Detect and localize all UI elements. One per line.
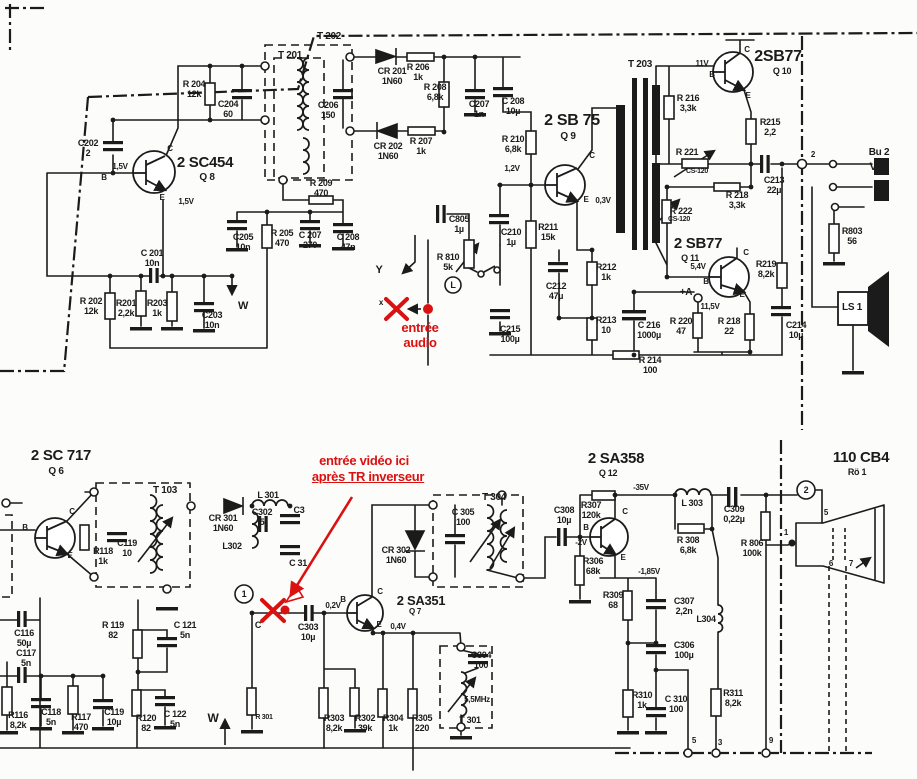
r810-label: R 810 5k [437, 252, 460, 272]
r219-label: R219 8,2k [756, 259, 776, 279]
r311-label: R311 8,2k [723, 688, 743, 708]
a-volt-label: 11,5V [701, 303, 720, 312]
bu2-label: Bu 2 [869, 147, 889, 158]
r214-label: R 214 100 [639, 355, 662, 375]
t304-label: T 304 [482, 492, 506, 503]
cr302-label: CR 302 1N60 [382, 545, 411, 565]
q7-ref-label: Q 7 [409, 608, 421, 617]
q12-e-label: E [620, 554, 625, 563]
c205-label: C205 10n [233, 232, 253, 252]
pin3-bottom-label: 3 [718, 739, 722, 748]
q10-base-volt-label: 11V [696, 60, 709, 69]
r307-label: R307 120k [581, 500, 601, 520]
q10-e-label: E [745, 92, 750, 101]
c117-label: C117 5n [16, 648, 36, 668]
c305-label: C 305 100 [452, 507, 475, 527]
q12-coll-volt-label: -35V [633, 484, 649, 493]
q10-type-label: 2SB77 [754, 48, 801, 66]
q7-b-label: B [340, 596, 345, 605]
c119b-label: C119 10µ [104, 707, 124, 727]
q8-base-volt-label: 1,5V [112, 163, 127, 172]
q10-ref-label: Q 10 [773, 66, 791, 76]
r304-label: R304 1k [383, 713, 403, 733]
c302-label: C302 5 [252, 507, 272, 527]
c204-label: C204 60 [218, 99, 238, 119]
schematic-canvas: Scanned TV receiver schematic: audio out… [0, 0, 917, 779]
node1-circle-label: 1 [242, 589, 247, 599]
q10-b-label: B [709, 71, 714, 80]
r218b-label: R 218 22 [718, 316, 741, 336]
q8-c-label: C [167, 145, 172, 154]
c121-label: C 121 5n [174, 620, 197, 640]
q9-ref-label: Q 9 [560, 131, 575, 142]
c203-label: C203 10n [202, 310, 222, 330]
c207a-label: C207 1n [469, 99, 489, 119]
plus-a-label: +A [680, 287, 692, 298]
q6-ref-label: Q 6 [48, 466, 63, 477]
q9-c-label: C [589, 152, 594, 161]
q8-b-label: B [101, 174, 106, 183]
r218a-label: R 218 3,3k [726, 190, 749, 210]
c122-label: C 122 5n [164, 709, 187, 729]
c202-label: C202 2 [78, 138, 98, 158]
crt-pin7-label: 7 [849, 560, 853, 569]
ls1-label: LS 1 [842, 302, 862, 313]
trap-freq-label: 5,5MHz [464, 696, 490, 705]
q6-type-label: 2 SC 717 [31, 448, 91, 465]
r803-label: R803 56 [842, 226, 862, 246]
q8-type-label: 2 SC454 [177, 155, 233, 172]
c303-label: C303 10µ [298, 622, 318, 642]
c210-label: C210 1µ [501, 227, 521, 247]
r208-label: R 208 6,8k [424, 82, 447, 102]
r116-label: R116 8,2k [8, 710, 28, 730]
q6-b-label: B [22, 524, 27, 533]
l304-label: L304 [696, 614, 715, 624]
c3-label: C3 [294, 505, 305, 515]
c119a-label: C119 10 [117, 538, 137, 558]
r201-label: R201 2,2k [116, 298, 136, 318]
t203-label: T 203 [628, 59, 652, 70]
r207-label: R 207 1k [410, 136, 433, 156]
r117-label: R117 470 [71, 712, 91, 732]
c306-label: C306 100µ [674, 640, 694, 660]
c118-label: C118 5n [41, 707, 61, 727]
q6-e-label: E [67, 552, 72, 561]
q8-ref-label: Q 8 [199, 172, 214, 183]
c216-label: C 216 1000µ [637, 320, 661, 340]
c201-label: C 201 10n [141, 248, 164, 268]
q9-base-volt-label: 1,2V [504, 165, 519, 174]
video-entry-annotation-line2: après TR inverseur [312, 470, 424, 485]
crt-type-label: 110 CB4 [833, 450, 889, 467]
r118-label: R118 1k [93, 546, 113, 566]
pin5-bottom-label: 5 [692, 737, 696, 746]
crt-pin5-label: 5 [824, 509, 828, 518]
c215-label: C215 100µ [500, 324, 520, 344]
r309-label: R309 68 [603, 590, 623, 610]
r308-label: R 308 6,8k [677, 535, 700, 555]
r120-label: R120 82 [136, 713, 156, 733]
q7-e-label: E [376, 621, 381, 630]
q10-c-label: C [744, 46, 749, 55]
schematic-labels: T 202T 2012 SC454Q 81,5VBCE1,5VC202 2R 2… [0, 0, 917, 779]
c308-label: C308 10µ [554, 505, 574, 525]
q12-b-label: B [583, 524, 588, 533]
cr201-label: CR 201 1N60 [378, 66, 407, 86]
crt-pin6-label: 6 [829, 560, 833, 569]
volume-control-label: L [450, 280, 455, 290]
r119-label: R 119 82 [102, 620, 124, 640]
r204-label: R 204 12k [183, 79, 206, 99]
r222-label: R 222 [670, 206, 693, 216]
audio-entry-annotation: entrée audio [401, 321, 438, 350]
x-mark-label: x [379, 299, 383, 308]
c208b-label: C 208 47n [337, 232, 360, 252]
q12-type-label: 2 SA358 [588, 451, 644, 468]
l302-label: L302 [222, 541, 241, 551]
r205-label: R 205 470 [271, 228, 294, 248]
pin9-bottom-label: 9 [769, 737, 773, 746]
c309-label: C309 0,22µ [723, 504, 744, 524]
q9-type-label: 2 SB 75 [544, 112, 600, 130]
r209-label: R 209 470 [310, 178, 333, 198]
q11-c-label: C [743, 249, 748, 258]
q6-c-label: C [69, 508, 74, 517]
c310-label: C 310 100 [665, 694, 688, 714]
r203-label: R203 1k [147, 298, 167, 318]
l303-label: L 303 [681, 498, 702, 508]
r210-label: R 210 6,8k [502, 134, 525, 154]
node2-circle-label: 2 [804, 485, 809, 495]
cr202-label: CR 202 1N60 [374, 141, 403, 161]
r301-label: R 301 [255, 714, 272, 722]
q8-e-label: E [159, 194, 164, 203]
y-arrow-label: Y [375, 264, 382, 276]
l301-label: L 301 [257, 490, 278, 500]
r306-label: R306 68k [583, 556, 603, 576]
q7-base-c-label: C [255, 620, 261, 630]
r206-label: R 206 1k [407, 62, 430, 82]
crt-pin1-label: 1 [784, 529, 788, 538]
c206-label: C206 150 [318, 100, 338, 120]
q7-base-volt-label: 0,2V [325, 602, 340, 611]
c805-label: C805 1µ [449, 214, 469, 234]
q11-type-label: 2 SB77 [674, 236, 722, 253]
r222-value-label: CS-120 [668, 216, 690, 224]
r212-label: R212 1k [596, 262, 616, 282]
t103-label: T 103 [153, 485, 177, 496]
q12-emitter-volt-label: -1,85V [638, 568, 660, 577]
c31-label: C 31 [289, 558, 307, 568]
video-entry-annotation-line1: entrée vidéo ici [319, 454, 409, 469]
r202-label: R 202 12k [80, 296, 103, 316]
c214-label: C214 10µ [786, 320, 806, 340]
q11-e-label: E [739, 291, 744, 300]
r310-label: R310 1k [632, 690, 652, 710]
c208a-label: C 208 10µ [502, 96, 525, 116]
r213-label: R213 10 [596, 315, 616, 335]
bu2-v-label: V [869, 161, 876, 173]
q11-base-volt-label: 5,4V [690, 263, 705, 272]
q8-emitter-volt-label: 1,5V [178, 198, 193, 207]
t201-label: T 201 [278, 50, 302, 61]
q9-e-label: E [583, 196, 588, 205]
q7-type-label: 2 SA351 [397, 594, 446, 609]
r303-label: R303 8,2k [324, 713, 344, 733]
c307-label: C307 2,2n [674, 596, 694, 616]
r221-value-label: CS-120 [686, 168, 708, 176]
r215-label: R215 2,2 [760, 117, 780, 137]
q12-base-volt-label: -2V [575, 539, 587, 548]
r220-label: R 220 47 [670, 316, 693, 336]
c207b-label: C 207 270 [299, 230, 322, 250]
t301-label: T 301 [459, 715, 481, 725]
q11-b-label: B [703, 278, 708, 287]
node2-top-label: 2 [811, 151, 815, 160]
q7-c-label: C [377, 588, 382, 597]
w-up-label: W [207, 712, 218, 725]
r305-label: R305 220 [412, 713, 432, 733]
cr301-label: CR 301 1N60 [209, 513, 238, 533]
crt-ref-label: Rö 1 [848, 467, 866, 477]
c304-label: C304 100 [471, 650, 491, 670]
r302-label: R302 39k [355, 713, 375, 733]
c213-label: C213 22µ [764, 175, 784, 195]
r806-label: R 806 100k [741, 538, 764, 558]
q7-emitter-volt-label: 0,4V [390, 623, 405, 632]
q12-c-label: C [622, 508, 627, 517]
c116-label: C116 50µ [14, 628, 34, 648]
r216-label: R 216 3,3k [677, 93, 700, 113]
r211-label: R211 15k [538, 222, 558, 242]
w-down-label: W [238, 300, 248, 312]
t202-label: T 202 [317, 31, 341, 42]
q9-emitter-volt-label: 0,3V [595, 197, 610, 206]
c212-label: C212 47µ [546, 281, 566, 301]
q12-ref-label: Q 12 [599, 468, 617, 478]
r221-label: R 221 [676, 147, 699, 157]
